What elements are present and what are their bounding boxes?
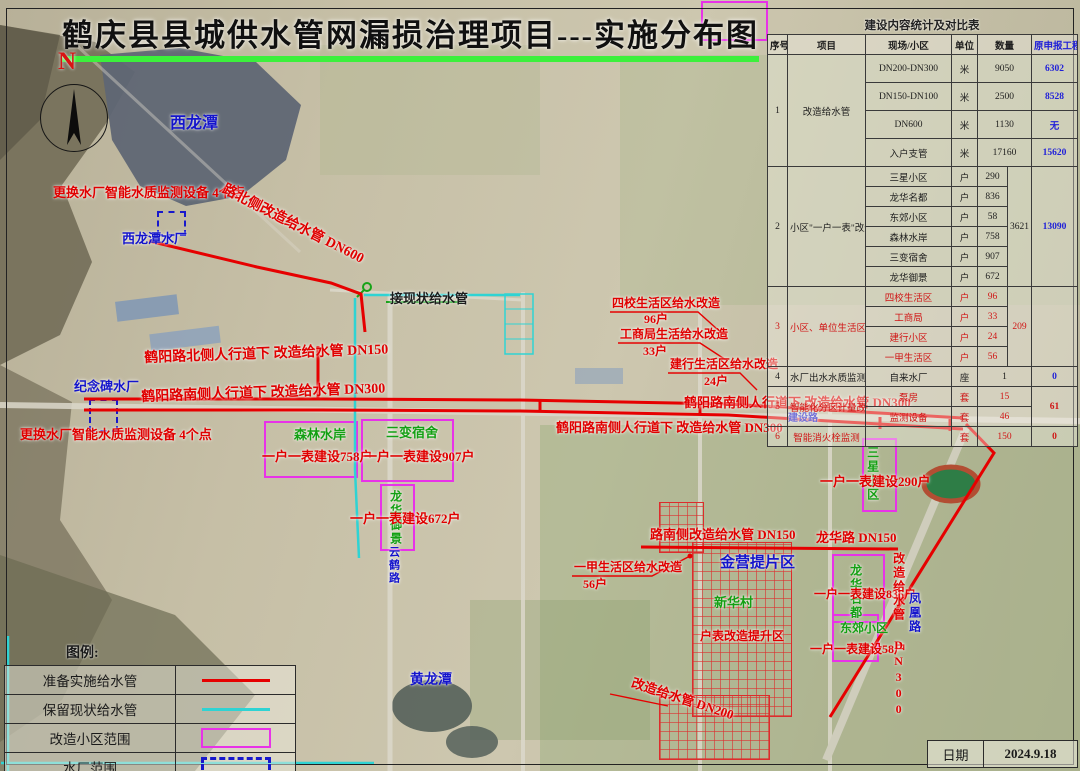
legend-label: 水厂范围 — [5, 753, 176, 771]
cell-site: DN600 — [866, 111, 952, 139]
cell-declared: 0 — [1032, 427, 1078, 447]
cell-declared — [1032, 287, 1078, 367]
date-box: 日期 2024.9.18 — [927, 740, 1078, 768]
cell-total: 209 — [1008, 287, 1032, 367]
table-row: 5智能化分区计量改造泵房套1561 — [768, 387, 1078, 407]
cell-site: 监测设备 — [866, 407, 952, 427]
cell-site: 入户支管 — [866, 139, 952, 167]
cell-qty: 56 — [978, 347, 1008, 367]
label-leader-lines — [572, 312, 757, 706]
cell-site: 四校生活区 — [866, 287, 952, 307]
cell-unit: 户 — [952, 287, 978, 307]
cell-qty: 836 — [978, 187, 1008, 207]
map-label: 更换水厂智能水质监测设备 4个点 — [20, 428, 212, 442]
col-unit: 单位 — [952, 35, 978, 55]
cell-qty: 290 — [978, 167, 1008, 187]
map-label: 龙华路 DN150 — [816, 531, 897, 545]
cell-project: 小区"一户一表"改造建设 — [788, 167, 866, 287]
cell-unit: 米 — [952, 55, 978, 83]
map-label: 三变宿舍 — [386, 426, 438, 440]
legend-swatch-cell — [176, 695, 296, 724]
map-label: 森林水岸 — [294, 428, 346, 442]
map-label: 西龙潭 — [170, 116, 218, 133]
map-label: 一甲生活区给水改造 — [574, 561, 682, 574]
date-value: 2024.9.18 — [984, 741, 1077, 767]
map-label: 路南侧改造给水管 DN150 — [650, 528, 796, 542]
cell-unit: 户 — [952, 207, 978, 227]
map-label: 四校生活区给水改造 — [612, 297, 720, 310]
map-label: 56户 — [583, 578, 607, 591]
cell-qty: 46 — [978, 407, 1032, 427]
page-title: 鹤庆县县城供水管网漏损治理项目---实施分布图 — [62, 10, 759, 62]
cell-declared: 15620 — [1032, 139, 1078, 167]
cell-unit: 户 — [952, 167, 978, 187]
map-label: 改造给水管 DN300 — [892, 552, 905, 718]
col-declared: 原申报工程量 — [1032, 35, 1078, 55]
map-label: 户表改造提升区 — [700, 630, 784, 643]
cell-no: 1 — [768, 55, 788, 167]
map-label: 黄龙潭 — [410, 674, 452, 689]
map-label: 一户一表建设672户 — [350, 512, 461, 526]
map-label: 建行生活区给水改造 — [670, 358, 778, 371]
map-label: 一户一表建设290户 — [820, 475, 931, 489]
legend-swatch-cell — [176, 666, 296, 695]
cell-site: DN150-DN100 — [866, 83, 952, 111]
map-label: 东郊小区 — [840, 622, 888, 635]
map-label: 更换水厂智能水质监测设备 4个点 — [53, 186, 245, 200]
map-label: 新华村 — [714, 596, 753, 610]
compass-icon — [40, 84, 108, 152]
cell-unit: 户 — [952, 227, 978, 247]
map-label: 接现状给水管 — [390, 292, 468, 306]
map-label: 一户一表建设758户 — [262, 450, 373, 464]
map-label: 云鹤路 — [387, 546, 399, 585]
col-qty: 数量 — [978, 35, 1032, 55]
table-row: 4水厂出水水质监测自来水厂座10 — [768, 367, 1078, 387]
cell-site: 森林水岸 — [866, 227, 952, 247]
cell-unit: 米 — [952, 83, 978, 111]
table-row: 6智能消火栓监测套1500 — [768, 427, 1078, 447]
cell-project: 水厂出水水质监测 — [788, 367, 866, 387]
legend-title: 图例: — [66, 642, 298, 662]
statistics-table: 建设内容统计及对比表 序号 项目 现场/小区 单位 数量 原申报工程量 1改造给… — [767, 17, 1077, 447]
cell-no: 6 — [768, 427, 788, 447]
cell-qty: 1 — [978, 367, 1032, 387]
cell-declared: 无 — [1032, 111, 1078, 139]
legend: 图例: 准备实施给水管保留现状给水管改造小区范围水厂范围 — [4, 642, 298, 771]
cell-unit: 户 — [952, 247, 978, 267]
table-header-row: 序号 项目 现场/小区 单位 数量 原申报工程量 — [768, 35, 1078, 55]
cell-qty: 2500 — [978, 83, 1032, 111]
cell-unit: 户 — [952, 267, 978, 287]
magenta-box-swatch — [201, 728, 271, 748]
col-no: 序号 — [768, 35, 788, 55]
legend-label: 保留现状给水管 — [5, 695, 176, 724]
blue-dashed-box-swatch — [201, 757, 271, 771]
cell-unit: 户 — [952, 347, 978, 367]
cell-site: 工商局 — [866, 307, 952, 327]
cell-no: 4 — [768, 367, 788, 387]
table-row: 3小区、单位生活区给水改造四校生活区户96209 — [768, 287, 1078, 307]
cell-site: DN200-DN300 — [866, 55, 952, 83]
cell-unit: 户 — [952, 187, 978, 207]
cell-site — [866, 427, 952, 447]
cell-site: 龙华御景 — [866, 267, 952, 287]
cell-qty: 17160 — [978, 139, 1032, 167]
cell-declared: 6302 — [1032, 55, 1078, 83]
cell-unit: 户 — [952, 307, 978, 327]
map-label: 金营提片区 — [720, 556, 795, 572]
cell-site: 三星小区 — [866, 167, 952, 187]
cell-qty: 907 — [978, 247, 1008, 267]
table-title: 建设内容统计及对比表 — [767, 17, 1077, 33]
map-label: 96户 — [644, 313, 668, 326]
red-line-swatch — [202, 679, 270, 682]
col-project: 项目 — [788, 35, 866, 55]
table-row: 2小区"一户一表"改造建设三星小区户290362113090 — [768, 167, 1078, 187]
cell-qty: 1130 — [978, 111, 1032, 139]
cell-unit: 座 — [952, 367, 978, 387]
legend-swatch-cell — [176, 753, 296, 771]
cyan-line-swatch — [202, 708, 270, 711]
cell-qty: 9050 — [978, 55, 1032, 83]
legend-label: 改造小区范围 — [5, 724, 176, 753]
cell-qty: 758 — [978, 227, 1008, 247]
cell-qty: 672 — [978, 267, 1008, 287]
map-canvas: 西龙潭更换水厂智能水质监测设备 4个点西龙潭水厂路北侧改造给水管 DN600接现… — [0, 0, 1080, 771]
map-label: 一户一表建设907户 — [364, 450, 475, 464]
cell-site: 泵房 — [866, 387, 952, 407]
cell-no: 5 — [768, 387, 788, 427]
map-label: 凤凰路 — [908, 592, 921, 634]
cell-unit: 米 — [952, 111, 978, 139]
cell-unit: 套 — [952, 387, 978, 407]
cell-declared: 0 — [1032, 367, 1078, 387]
table-row: 1改造给水管DN200-DN300米90506302 — [768, 55, 1078, 83]
map-label: 工商局生活给水改造 — [620, 328, 728, 341]
map-label: 纪念碑水厂 — [74, 380, 139, 394]
cell-project: 智能化分区计量改造 — [788, 387, 866, 427]
legend-row: 保留现状给水管 — [5, 695, 296, 724]
col-site: 现场/小区 — [866, 35, 952, 55]
legend-label: 准备实施给水管 — [5, 666, 176, 695]
cell-site: 自来水厂 — [866, 367, 952, 387]
cell-qty: 33 — [978, 307, 1008, 327]
cell-project: 改造给水管 — [788, 55, 866, 167]
cell-qty: 24 — [978, 327, 1008, 347]
cell-project: 智能消火栓监测 — [788, 427, 866, 447]
cell-qty: 15 — [978, 387, 1032, 407]
map-label: 西龙潭水厂 — [122, 232, 187, 246]
map-label: 33户 — [643, 345, 667, 358]
cell-site: 龙华名都 — [866, 187, 952, 207]
cell-site: 一甲生活区 — [866, 347, 952, 367]
date-label: 日期 — [928, 741, 984, 767]
cell-unit: 套 — [952, 427, 978, 447]
cell-no: 3 — [768, 287, 788, 367]
cell-qty: 96 — [978, 287, 1008, 307]
cell-declared: 61 — [1032, 387, 1078, 427]
compass-north-label: N — [58, 48, 76, 76]
cell-unit: 套 — [952, 407, 978, 427]
cell-qty: 150 — [978, 427, 1032, 447]
cell-no: 2 — [768, 167, 788, 287]
cell-site: 东郊小区 — [866, 207, 952, 227]
cell-qty: 58 — [978, 207, 1008, 227]
map-label: 24户 — [704, 375, 728, 388]
cell-project: 小区、单位生活区给水改造 — [788, 287, 866, 367]
cell-unit: 户 — [952, 327, 978, 347]
legend-row: 改造小区范围 — [5, 724, 296, 753]
cell-site: 建行小区 — [866, 327, 952, 347]
legend-row: 准备实施给水管 — [5, 666, 296, 695]
legend-swatch-cell — [176, 724, 296, 753]
cell-declared: 8528 — [1032, 83, 1078, 111]
cell-total: 3621 — [1008, 167, 1032, 287]
cell-site: 三变宿舍 — [866, 247, 952, 267]
cell-unit: 米 — [952, 139, 978, 167]
map-label: 鹤阳路南侧人行道下 改造给水管 DN300 — [556, 421, 783, 435]
cell-declared: 13090 — [1032, 167, 1078, 287]
legend-row: 水厂范围 — [5, 753, 296, 771]
